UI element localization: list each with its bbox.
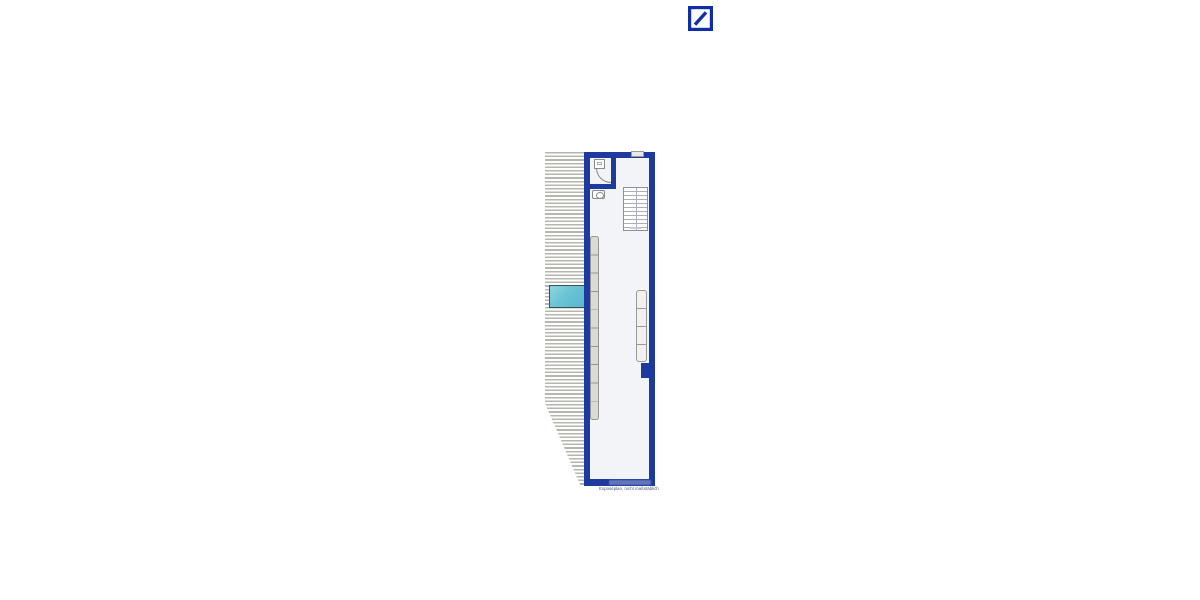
wc-wall-vertical: [611, 158, 616, 185]
watermark: [609, 480, 651, 485]
wall-pier: [641, 363, 651, 378]
stair-mark: [630, 227, 641, 230]
radiator-right: [636, 290, 647, 362]
wall-top: [584, 152, 655, 158]
stair-centerline: [636, 188, 637, 230]
deutsche-bank-logo: [688, 6, 713, 31]
roof-hatch-area: [545, 152, 586, 487]
wc-toilet: [592, 190, 605, 199]
wc-wall-horizontal: [590, 184, 616, 189]
top-window: [631, 151, 644, 157]
skylight: [549, 285, 585, 308]
deutsche-bank-logo-icon: [688, 6, 713, 31]
radiator-left: [590, 236, 599, 420]
staircase: [623, 187, 648, 231]
wall-right: [649, 152, 655, 486]
plan-caption: Exposéplan, nicht maßstäblich: [597, 485, 661, 492]
